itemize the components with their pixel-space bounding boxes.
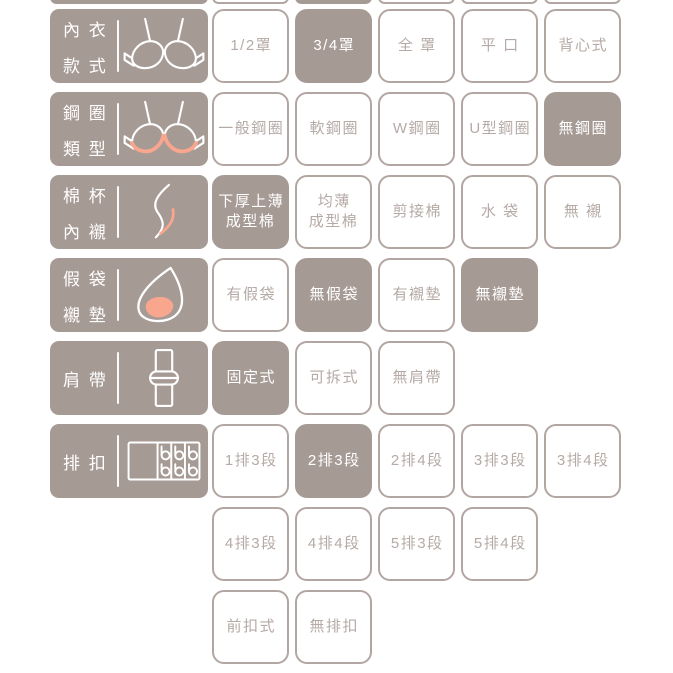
label-spacer: [50, 507, 212, 581]
category-label: 鋼 圈類 型: [63, 99, 108, 160]
option-button[interactable]: 前扣式: [212, 590, 289, 664]
option-button[interactable]: 固定式: [212, 341, 289, 415]
option-button[interactable]: 可拆式: [295, 341, 372, 415]
category-label-block: 棉 杯內 襯: [50, 175, 208, 249]
option-button[interactable]: 2排4段: [378, 424, 455, 498]
option-button[interactable]: 3/4罩: [295, 9, 372, 83]
label-divider: [117, 352, 119, 404]
option-button[interactable]: U型鋼圈: [461, 92, 538, 166]
cup-profile-icon: [123, 181, 205, 243]
spec-line: 前扣式無排扣: [50, 590, 378, 664]
option-button[interactable]: 有假袋: [212, 258, 289, 332]
category-label-line: 棉 杯: [63, 182, 108, 207]
category-label-line: 假 袋: [63, 265, 108, 290]
label-divider: [117, 186, 119, 238]
cutoff-option-sliver: [461, 0, 538, 4]
category-label-line: 襯 墊: [63, 301, 108, 326]
option-button[interactable]: 平 口: [461, 9, 538, 83]
option-button[interactable]: 背心式: [544, 9, 621, 83]
cutoff-option-sliver: [544, 0, 621, 4]
spec-line: 鋼 圈類 型 一般鋼圈軟鋼圈W鋼圈U型鋼圈無鋼圈: [50, 92, 627, 166]
option-button[interactable]: 1/2罩: [212, 9, 289, 83]
label-divider: [117, 269, 119, 321]
category-label-line: 款 式: [63, 52, 108, 77]
spec-line: 內 衣款 式 1/2罩3/4罩全 罩平 口背心式: [50, 9, 627, 83]
option-button[interactable]: W鋼圈: [378, 92, 455, 166]
category-label: 棉 杯內 襯: [63, 182, 108, 243]
shoulder-strap-icon: [123, 346, 205, 410]
option-button[interactable]: 一般鋼圈: [212, 92, 289, 166]
category-label: 內 衣款 式: [63, 16, 108, 77]
option-button[interactable]: 均薄 成型棉: [295, 175, 372, 249]
category-label-line: 內 衣: [63, 16, 108, 41]
category-label-line: 類 型: [63, 135, 108, 160]
spec-line: 棉 杯內 襯 下厚上薄 成型棉均薄 成型棉剪接棉水 袋無 襯: [50, 175, 627, 249]
spec-line: 肩 帶 固定式可拆式無肩帶: [50, 341, 461, 415]
bra-underwire-icon: [123, 98, 205, 160]
option-button[interactable]: 2排3段: [295, 424, 372, 498]
option-button[interactable]: 無排扣: [295, 590, 372, 664]
category-label-block: 內 衣款 式: [50, 9, 208, 83]
option-button[interactable]: 3排3段: [461, 424, 538, 498]
option-button[interactable]: 4排4段: [295, 507, 372, 581]
spec-line: 排 扣 1排3段2排3段2排4段3排3段3排4段: [50, 424, 627, 498]
category-label-line: 鋼 圈: [63, 99, 108, 124]
pad-icon: [123, 264, 205, 326]
option-button[interactable]: 5排4段: [461, 507, 538, 581]
option-button[interactable]: 3排4段: [544, 424, 621, 498]
option-button[interactable]: 無肩帶: [378, 341, 455, 415]
category-label-block: 肩 帶: [50, 341, 208, 415]
label-divider: [117, 435, 119, 487]
category-label-block: 排 扣: [50, 424, 208, 498]
bra-icon: [123, 15, 205, 77]
category-label: 假 袋襯 墊: [63, 265, 108, 326]
option-button[interactable]: 全 罩: [378, 9, 455, 83]
cutoff-option-sliver: [295, 0, 372, 4]
option-button[interactable]: 無襯墊: [461, 258, 538, 332]
category-label: 肩 帶: [63, 366, 108, 391]
option-button[interactable]: 水 袋: [461, 175, 538, 249]
category-label-line: 肩 帶: [63, 366, 108, 391]
cutoff-label-sliver: [50, 0, 208, 4]
option-button[interactable]: 無鋼圈: [544, 92, 621, 166]
hook-closure-icon: [123, 432, 205, 490]
label-spacer: [50, 590, 212, 664]
category-label: 排 扣: [63, 449, 108, 474]
option-button[interactable]: 無 襯: [544, 175, 621, 249]
spec-line: 4排3段4排4段5排3段5排4段: [50, 507, 544, 581]
category-label-block: 假 袋襯 墊: [50, 258, 208, 332]
option-button[interactable]: 4排3段: [212, 507, 289, 581]
cutoff-option-sliver: [212, 0, 289, 4]
option-button[interactable]: 剪接棉: [378, 175, 455, 249]
category-label-block: 鋼 圈類 型: [50, 92, 208, 166]
cutoff-option-sliver: [378, 0, 455, 4]
option-button[interactable]: 無假袋: [295, 258, 372, 332]
spec-line: 假 袋襯 墊 有假袋無假袋有襯墊無襯墊: [50, 258, 544, 332]
label-divider: [117, 20, 119, 72]
category-label-line: 內 襯: [63, 218, 108, 243]
bra-spec-board: 內 衣款 式 1/2罩3/4罩全 罩平 口背心式鋼 圈類 型 一般鋼圈軟鋼圈W鋼…: [0, 0, 673, 673]
category-label-line: 排 扣: [63, 449, 108, 474]
option-button[interactable]: 有襯墊: [378, 258, 455, 332]
option-button[interactable]: 5排3段: [378, 507, 455, 581]
option-button[interactable]: 下厚上薄 成型棉: [212, 175, 289, 249]
option-button[interactable]: 軟鋼圈: [295, 92, 372, 166]
label-divider: [117, 103, 119, 155]
option-button[interactable]: 1排3段: [212, 424, 289, 498]
